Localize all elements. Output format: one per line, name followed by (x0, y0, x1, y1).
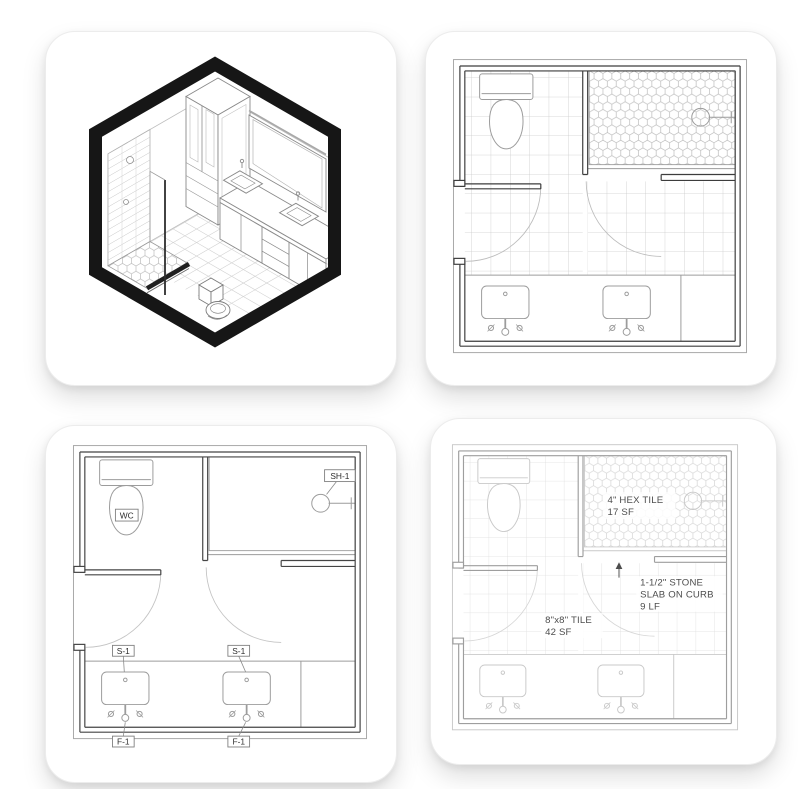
isometric-bathroom-drawing (46, 32, 396, 385)
label-f1-left: F-1 (117, 737, 130, 747)
card-fixture-plan[interactable]: SH-1 WC S-1 S-1 F-1 F-1 (45, 425, 397, 783)
label-sh1: SH-1 (330, 471, 349, 481)
leader-f1-left (123, 722, 125, 736)
card-isometric-view[interactable] (45, 31, 397, 386)
floor-note-line2: 42 SF (545, 627, 572, 638)
design-board: SH-1 WC S-1 S-1 F-1 F-1 (0, 0, 798, 789)
hex-note-line2: 17 SF (607, 507, 634, 518)
floor-note-line1: 8"x8" TILE (545, 615, 592, 626)
leader-s1-left (123, 656, 124, 672)
label-s1-right: S-1 (232, 646, 245, 656)
stone-note-line1: 1-1/2" STONE (640, 577, 703, 588)
fixture-plan-drawing: SH-1 WC S-1 S-1 F-1 F-1 (72, 444, 368, 752)
finish-plan-drawing: 4" HEX TILE 17 SF 1-1/2" STONE SLAB ON C… (451, 443, 739, 743)
stone-note-line3: 9 LF (640, 601, 660, 612)
card-finish-plan[interactable]: 4" HEX TILE 17 SF 1-1/2" STONE SLAB ON C… (430, 418, 777, 765)
hex-note-line1: 4" HEX TILE (607, 495, 663, 506)
label-f1-right: F-1 (232, 737, 245, 747)
label-s1-left: S-1 (117, 646, 130, 656)
card-floor-plan[interactable] (425, 31, 777, 386)
label-wc: WC (120, 510, 134, 520)
floor-plan-drawing (452, 58, 748, 366)
stone-note-line2: SLAB ON CURB (640, 589, 714, 600)
leader-f1-right (239, 722, 246, 736)
leader-s1-right (239, 656, 246, 672)
